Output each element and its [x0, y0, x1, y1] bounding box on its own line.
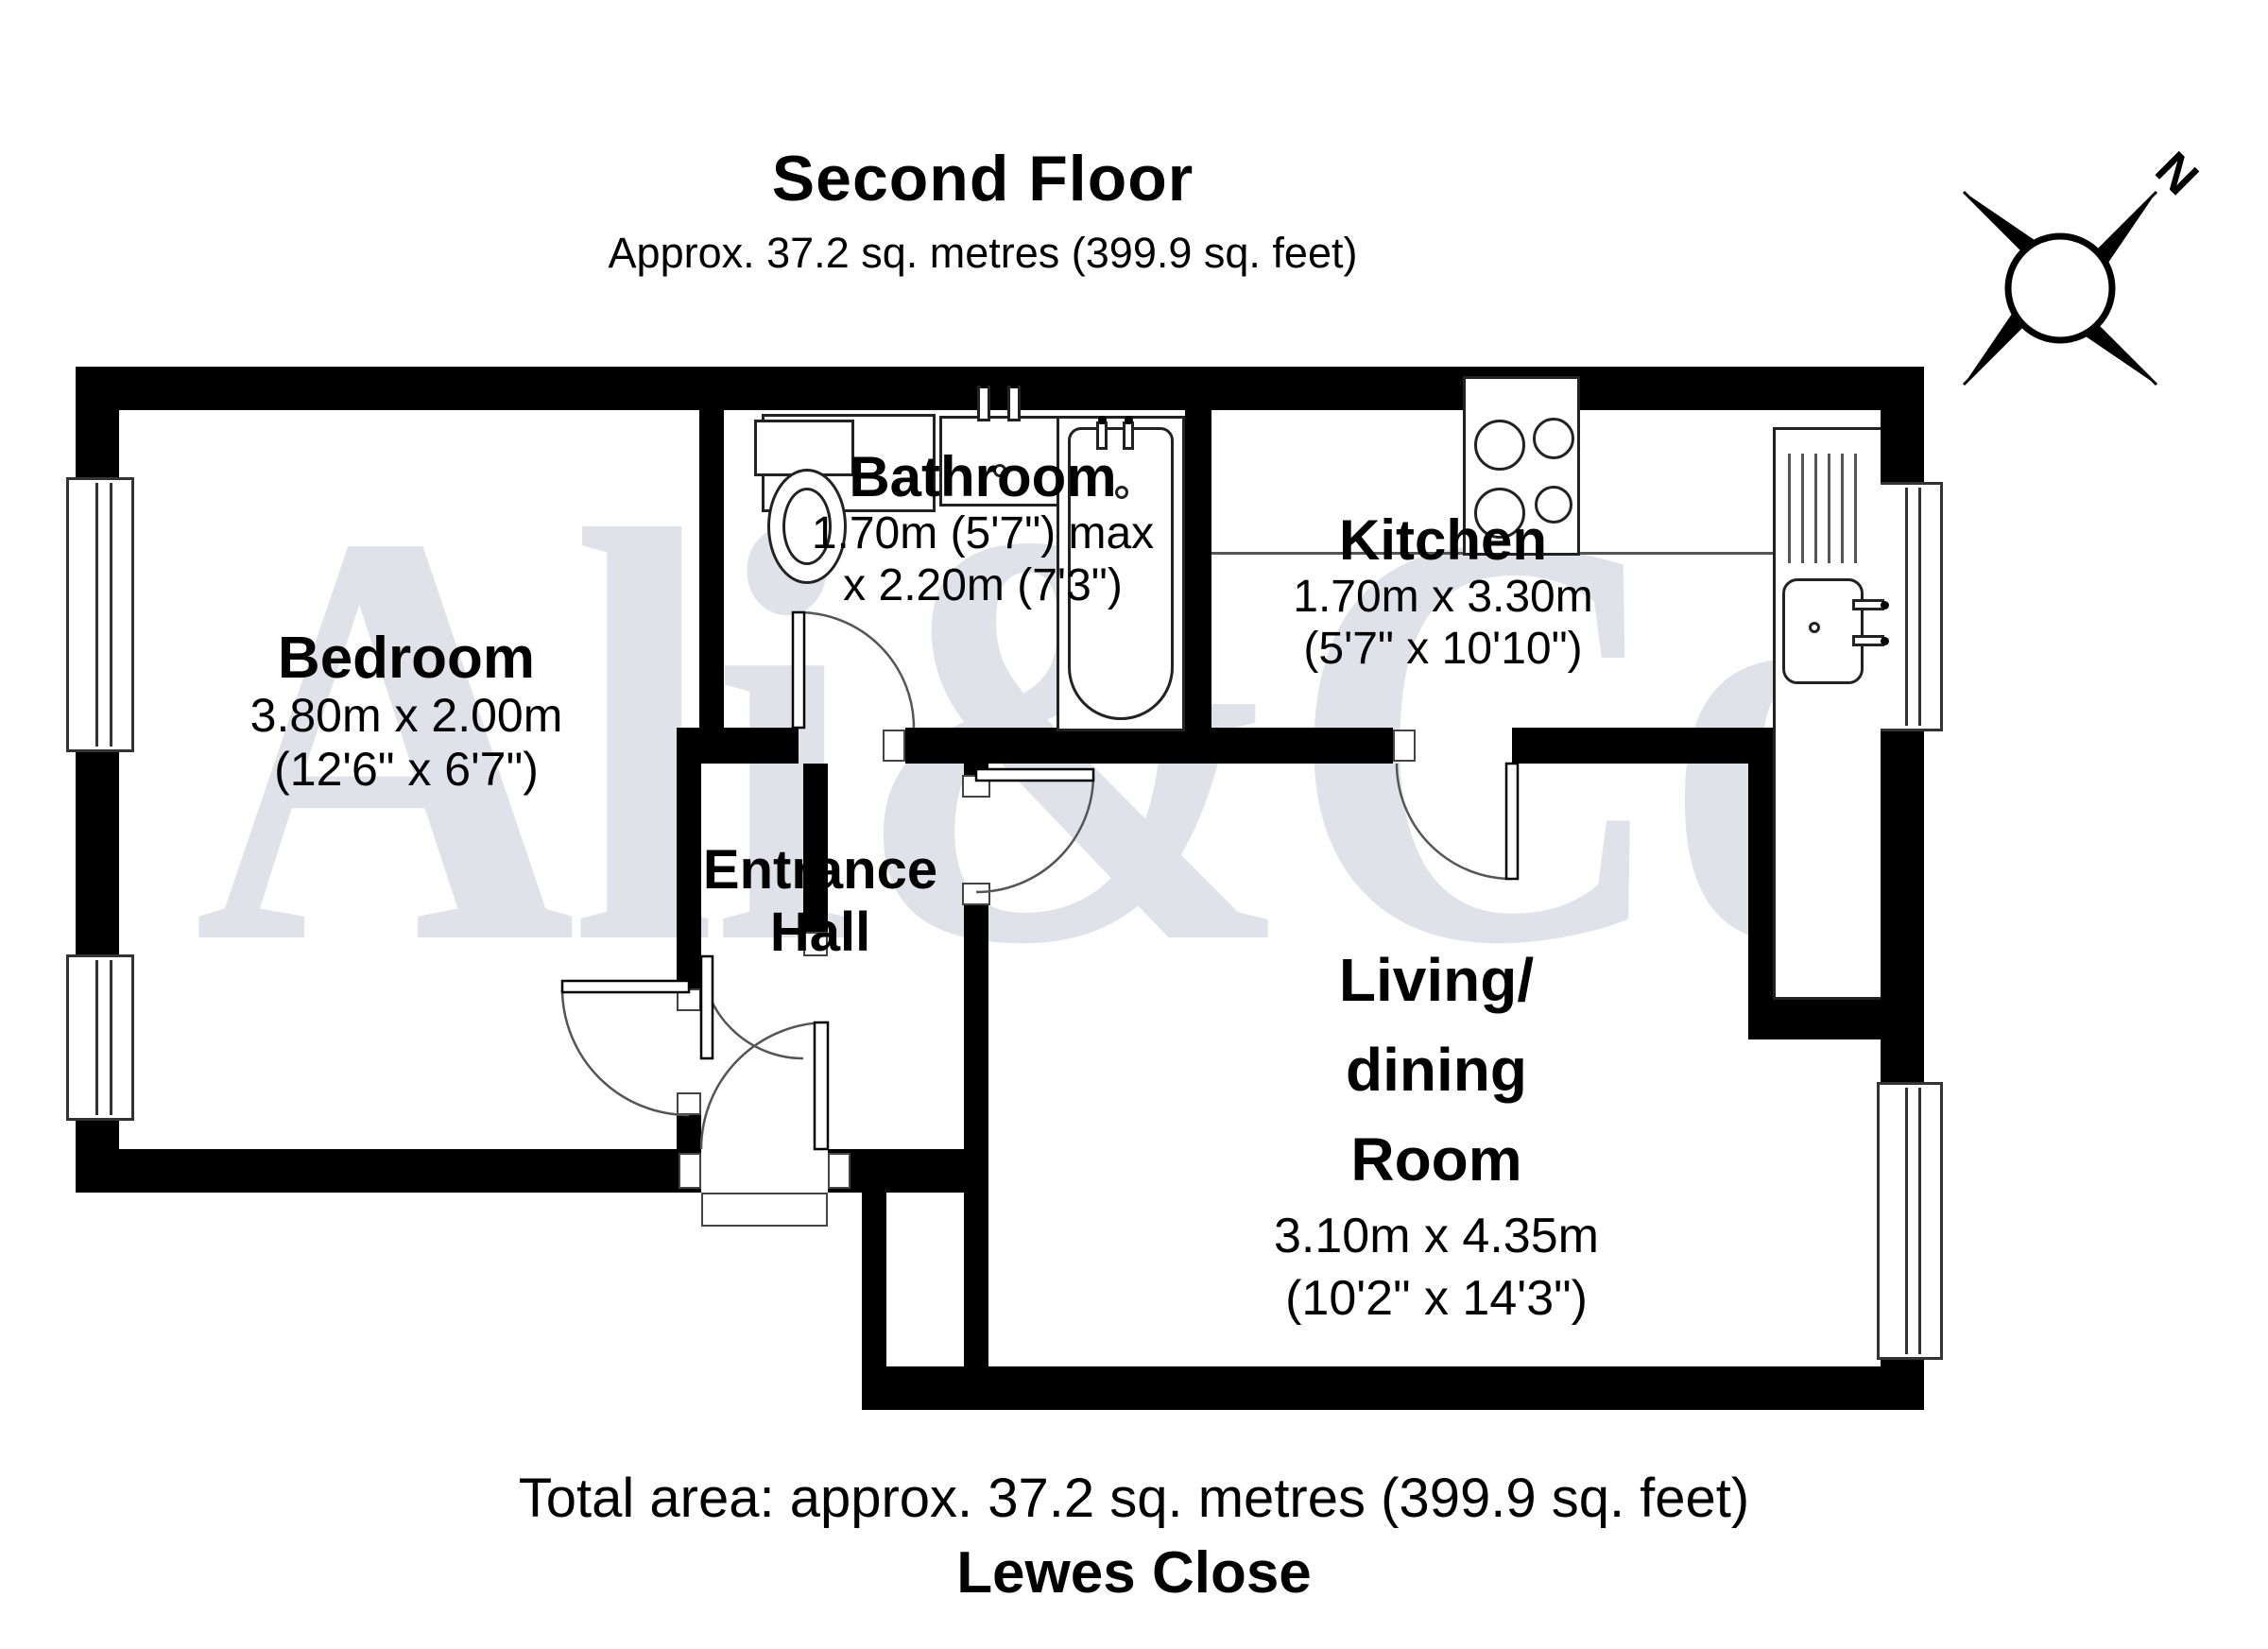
room-label-bedroom: Bedroom 3.80m x 2.00m (12'6" x 6'7"): [123, 628, 690, 797]
page-subtitle: Approx. 37.2 sq. metres (399.9 sq. feet): [321, 229, 1644, 278]
room-dim-imperial: (5'7" x 10'10"): [1160, 623, 1727, 675]
room-name-line2: dining: [1153, 1025, 1720, 1115]
room-name: Bathroom: [699, 447, 1266, 507]
kitchen-door-leaf: [1506, 764, 1518, 879]
room-label-kitchen: Kitchen 1.70m x 3.30m (5'7" x 10'10"): [1160, 510, 1727, 675]
floorplan-canvas: Second Floor Approx. 37.2 sq. metres (39…: [0, 0, 2268, 1649]
living-door-leaf: [976, 769, 1093, 781]
room-dim-metric: 3.80m x 2.00m: [123, 689, 690, 743]
closet-door-arc: [701, 956, 803, 1058]
bathroom-door-leaf: [793, 612, 804, 728]
front-door-leaf: [815, 1022, 828, 1149]
room-name-line3: Room: [1153, 1115, 1720, 1205]
room-label-living-dining: Living/ dining Room 3.10m x 4.35m (10'2"…: [1153, 936, 1720, 1330]
room-name: Bedroom: [123, 628, 690, 689]
bedroom-door-arc: [562, 988, 689, 1115]
total-area-text: Total area: approx. 37.2 sq. metres (399…: [189, 1467, 2079, 1530]
kitchen-door-arc: [1397, 764, 1512, 879]
room-name-line2: Hall: [584, 902, 1057, 964]
page-title: Second Floor: [321, 142, 1644, 215]
room-label-entrance-hall: Entrance Hall: [584, 839, 1057, 964]
compass-north-label: N: [2145, 142, 2209, 206]
address-text: Lewes Close: [189, 1539, 2079, 1606]
room-dim-metric: 3.10m x 4.35m: [1153, 1205, 1720, 1267]
title-block: Second Floor Approx. 37.2 sq. metres (39…: [321, 142, 1644, 278]
room-name-line1: Living/: [1153, 936, 1720, 1025]
front-door-arc: [701, 1022, 828, 1149]
room-name-line1: Entrance: [584, 839, 1057, 902]
room-name: Kitchen: [1160, 510, 1727, 571]
bathroom-door-arc: [799, 612, 914, 728]
footer-block: Total area: approx. 37.2 sq. metres (399…: [189, 1467, 2079, 1606]
bedroom-door-leaf: [562, 981, 689, 992]
room-dim-imperial: (10'2" x 14'3"): [1153, 1267, 1720, 1330]
closet-door-leaf: [701, 956, 713, 1058]
compass-icon: N: [1942, 109, 2225, 392]
room-dim-metric: 1.70m x 3.30m: [1160, 571, 1727, 623]
room-dim-imperial: (12'6" x 6'7"): [123, 743, 690, 797]
